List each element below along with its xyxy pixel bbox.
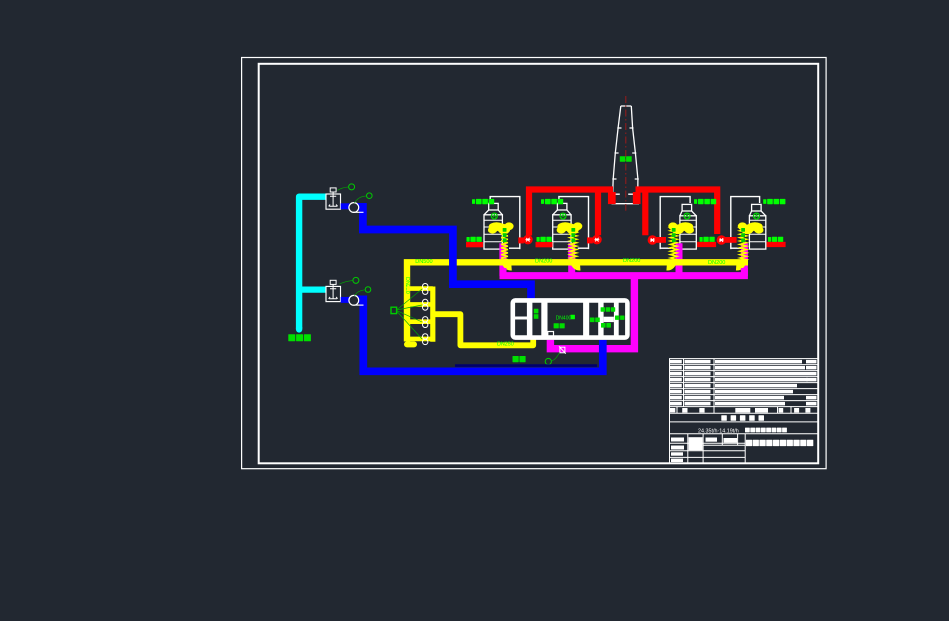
svg-text:DN200: DN200 [535,259,552,265]
svg-text:DN250: DN250 [497,342,514,348]
svg-text:DN400: DN400 [556,315,572,321]
svg-text:24.35t/h·14.19t/h: 24.35t/h·14.19t/h [698,428,739,434]
svg-text:DN200: DN200 [708,260,725,266]
svg-text:DN200: DN200 [623,258,640,264]
svg-text:DN500: DN500 [415,259,432,265]
svg-text:DN250: DN250 [404,277,410,294]
